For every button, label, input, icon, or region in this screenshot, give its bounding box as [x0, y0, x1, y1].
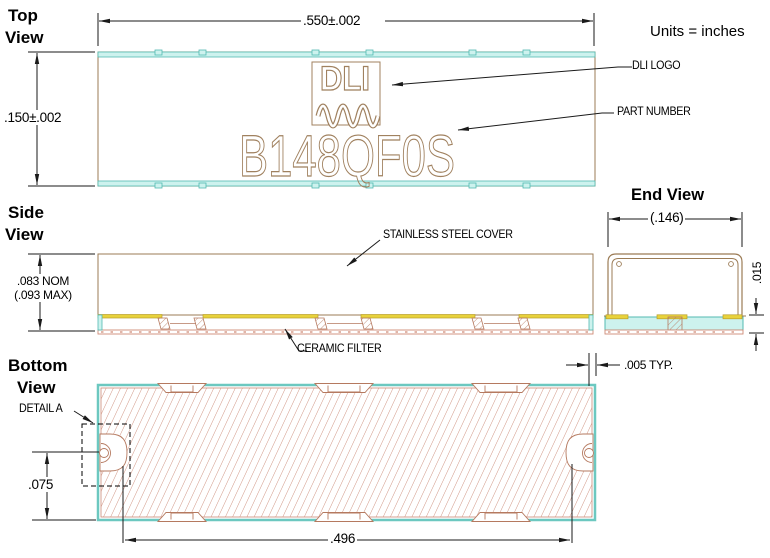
bottom-view-left-castellation [100, 434, 128, 471]
drawing-linework: DLI B148QF0S [0, 0, 770, 558]
side-view-castellation-notches [158, 318, 530, 329]
dim-cover-overhang: .005 TYP. [623, 358, 674, 372]
side-view-ceramic-base [98, 330, 593, 334]
bottom-view-title-line1: Bottom [8, 356, 67, 375]
end-view-cover-outer [608, 254, 742, 316]
end-view-cover-inner [612, 259, 738, 317]
top-view-drawing: DLI B148QF0S [98, 50, 595, 189]
dim-top-width: .550±.002 [301, 13, 362, 28]
side-view-title-line2: View [5, 225, 43, 244]
dim-side-height-nom: .083 NOM [1, 274, 85, 288]
dim-ceramic-thickness: .015 [750, 250, 764, 296]
detail-a-leader [74, 411, 93, 423]
top-view-title-line2: View [5, 28, 43, 47]
ceramic-label: CERAMIC FILTER [297, 343, 381, 355]
dli-logo: DLI [312, 60, 380, 126]
cover-label: STAINLESS STEEL COVER [383, 229, 513, 241]
dim-terminal-span: .496 [328, 531, 357, 546]
top-view-metal-strip-top [98, 52, 595, 57]
detail-a-label: DETAIL A [19, 403, 63, 415]
dim-end-width: (.146) [648, 210, 685, 225]
bottom-view-ground-metallization [101, 388, 592, 517]
dli-logo-label: DLI LOGO [632, 60, 680, 72]
dli-logo-text: DLI [320, 60, 370, 98]
side-view-cover [98, 254, 593, 315]
end-view-title: End View [631, 186, 704, 205]
end-view-center-via [668, 317, 682, 330]
dim-top-height: .150±.002 [2, 110, 63, 125]
dim-side-height-max: (.093 MAX) [1, 288, 85, 302]
dim-castellation-offset: .075 [26, 477, 55, 492]
side-view-title-line1: Side [8, 203, 44, 222]
part-number-marking: B148QF0S [239, 124, 455, 189]
bottom-view-drawing [82, 384, 595, 522]
bottom-view-right-castellation [566, 434, 594, 471]
top-view-title-line1: Top [8, 6, 38, 25]
dim-side-height: .083 NOM (.093 MAX) [0, 274, 86, 302]
engineering-drawing: DLI B148QF0S [0, 0, 770, 558]
part-number-label: PART NUMBER [617, 106, 691, 118]
bottom-view-title-line2: View [17, 378, 55, 397]
side-view-drawing [98, 254, 593, 334]
units-note: Units = inches [650, 23, 745, 40]
end-view-drawing [604, 254, 746, 334]
